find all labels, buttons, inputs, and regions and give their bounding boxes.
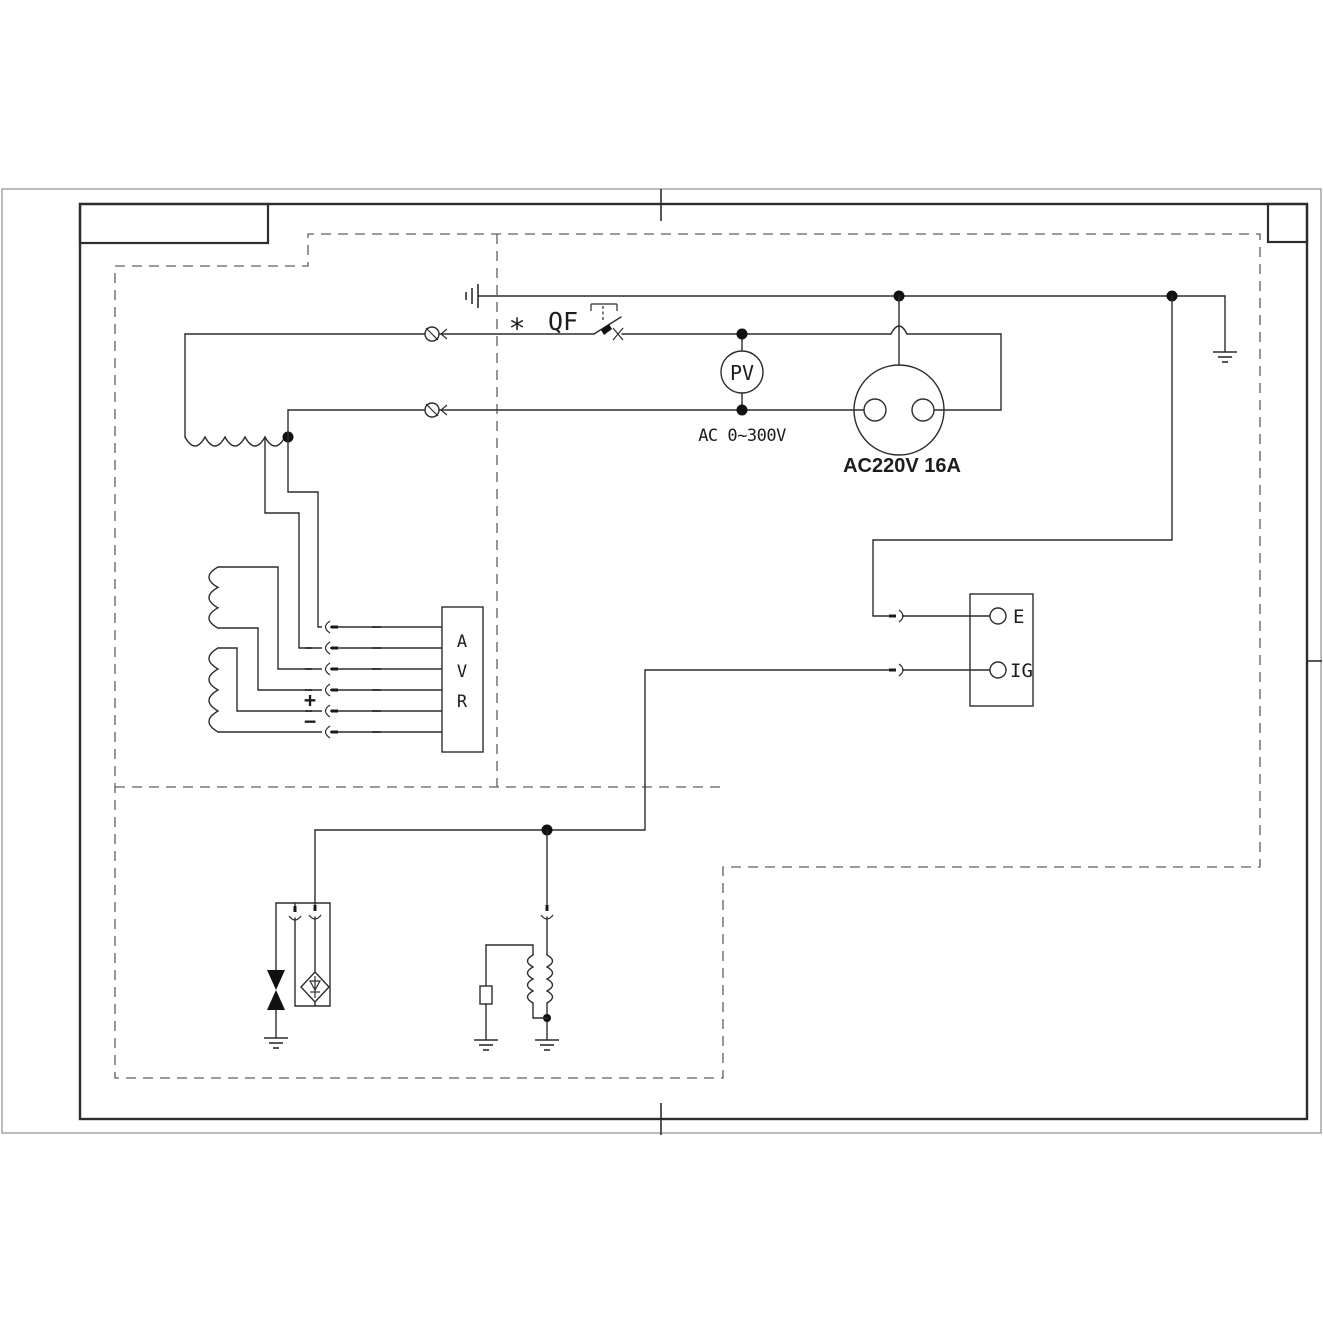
inline-connector-icon — [322, 642, 338, 654]
fuse-icon — [480, 986, 492, 1004]
inline-connector-icon — [322, 705, 338, 717]
avr-letter: R — [457, 692, 468, 712]
winding-icon — [547, 955, 553, 1003]
diode-triangle-down — [267, 970, 285, 990]
inline-connector-icon — [322, 663, 338, 675]
earth-ground-icon — [1213, 352, 1237, 362]
earth-ground-icon — [474, 1040, 498, 1050]
avr-letter: V — [457, 662, 467, 682]
voltmeter-label: PV — [730, 361, 754, 385]
inline-connector-icon — [889, 664, 903, 676]
line-return — [288, 403, 864, 417]
terminal-ig-label: IG — [1010, 660, 1033, 682]
title-block-left — [80, 204, 268, 243]
winding-icon — [185, 437, 285, 446]
terminal-e-label: E — [1013, 606, 1024, 628]
diode-icon — [301, 972, 329, 1002]
breaker-star-label: * — [509, 312, 526, 345]
socket-hole — [912, 399, 934, 421]
winding-icon — [209, 567, 218, 628]
voltmeter-range-label: AC 0~300V — [698, 426, 786, 446]
terminal-ig-post — [990, 662, 1006, 678]
inline-connector-icon — [322, 621, 338, 633]
junction-dot-icon — [737, 329, 748, 340]
voltmeter: PV AC 0~300V — [698, 329, 786, 447]
wire-code-marks — [305, 627, 381, 732]
bidirectional-diode-icon — [267, 970, 285, 1010]
stator-winding — [185, 334, 318, 648]
earth-bus — [466, 284, 1237, 362]
socket-hole — [864, 399, 886, 421]
winding-icon — [528, 955, 534, 1003]
schematic-page: PV AC 0~300V AC220V 16A — [0, 0, 1323, 1323]
earth-ground-icon — [535, 1040, 559, 1050]
rotor-winding — [209, 648, 237, 732]
chassis-ground-icon — [466, 284, 478, 308]
line-live — [185, 304, 1001, 410]
sheet-frame — [2, 189, 1322, 1135]
inline-connector-icon — [322, 726, 338, 738]
terminal-e-post — [990, 608, 1006, 624]
earth-ground-icon — [264, 1038, 288, 1048]
minus-label: − — [304, 709, 316, 733]
sheet-inner-frame — [80, 204, 1307, 1119]
inline-connector-icon — [322, 684, 338, 696]
avr-letter: A — [457, 632, 467, 652]
breaker-labels: * QF — [509, 307, 579, 345]
section-boundaries — [115, 234, 1260, 1078]
wiring-diagram: PV AC 0~300V AC220V 16A — [0, 0, 1323, 1323]
engine-section — [264, 825, 645, 1051]
breaker-icon — [591, 304, 623, 340]
inline-connector-icon — [889, 610, 903, 622]
sheet-outer-border — [2, 189, 1321, 1133]
winding-icon — [209, 648, 218, 732]
junction-dot-icon — [737, 405, 748, 416]
outer-dashed-boundary — [115, 234, 1260, 1078]
socket-rating-label: AC220V 16A — [843, 455, 961, 477]
breaker-label: QF — [548, 307, 578, 336]
diode-triangle-up — [267, 990, 285, 1010]
power-socket: AC220V 16A — [843, 291, 961, 478]
exciter-winding — [209, 567, 278, 690]
title-block-right — [1268, 204, 1307, 242]
